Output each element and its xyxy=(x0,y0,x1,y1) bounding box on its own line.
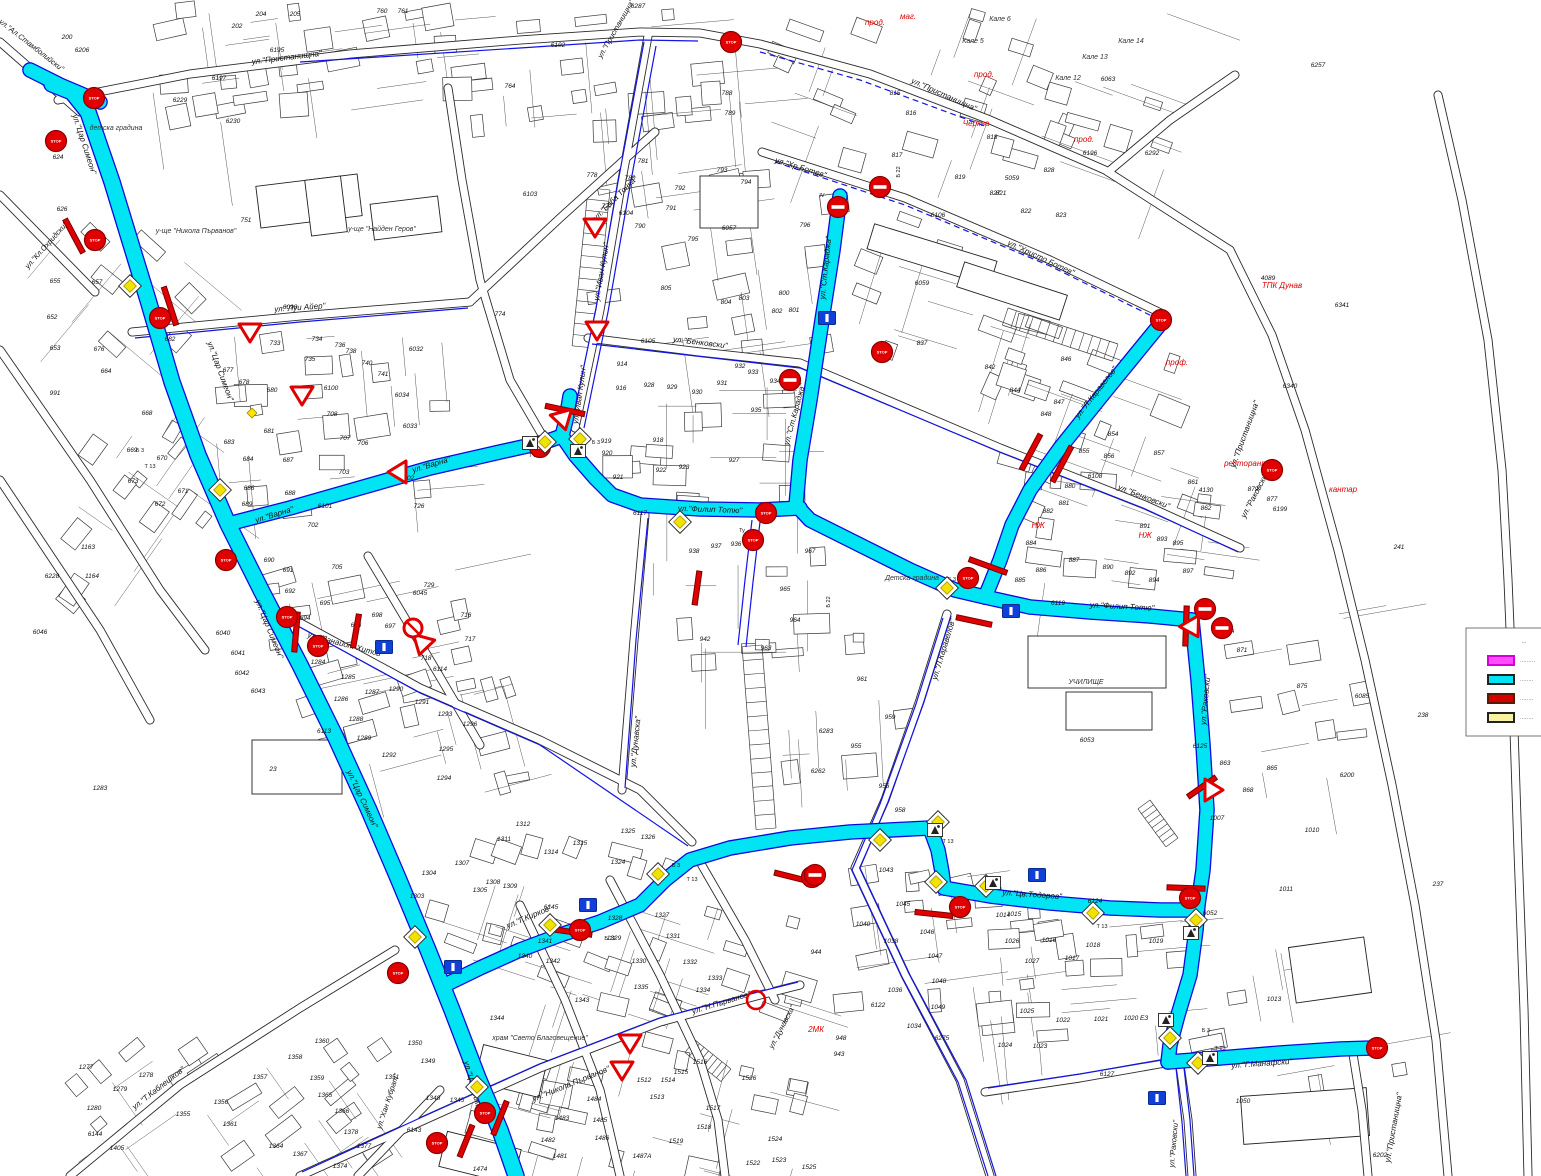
building-footprint-large xyxy=(370,196,442,240)
parcel-number: 802 xyxy=(772,308,783,315)
building-footprint xyxy=(341,1062,359,1081)
parcel-number: 887 xyxy=(1069,557,1080,564)
building-footprint xyxy=(1227,990,1247,1005)
parcel-number: 1050 xyxy=(1236,1098,1251,1105)
parcel-number: 5059 xyxy=(1005,175,1020,182)
parcel-number: 6228 xyxy=(45,573,60,580)
building-footprint xyxy=(751,1095,778,1115)
building-footprint xyxy=(684,412,702,431)
one-way-info-sign-icon xyxy=(1029,869,1046,882)
building-footprint xyxy=(277,431,302,455)
poi-label: прод. xyxy=(974,70,994,79)
legend-label: ········ xyxy=(1520,678,1534,684)
parcel-number: 1349 xyxy=(421,1058,436,1065)
building-footprint xyxy=(480,677,498,702)
parcel-number: 1036 xyxy=(888,987,903,994)
parcel-number: 884 xyxy=(1026,540,1037,547)
parcel-number: 1514 xyxy=(661,1077,676,1084)
parcel-number: 1295 xyxy=(439,746,454,753)
parcel-line xyxy=(504,96,507,127)
parcel-number: 681 xyxy=(264,428,275,435)
parcel-number: 868 xyxy=(1243,787,1254,794)
parcel-line xyxy=(1071,998,1137,1004)
building-footprint xyxy=(494,771,511,795)
place-label: детска градина xyxy=(90,124,143,132)
parcel-number: 1043 xyxy=(879,867,894,874)
parcel-number: 1025 xyxy=(1020,1008,1035,1015)
parcel-number: 1015 xyxy=(1007,911,1022,918)
parcel-number: 1278 xyxy=(139,1072,154,1079)
building-footprint xyxy=(976,1000,1013,1026)
parcel-number: 1487А xyxy=(633,1153,652,1160)
parcel-line xyxy=(1276,950,1283,990)
map-canvas[interactable]: 2002022042056206619561976229623062462675… xyxy=(0,0,1541,1176)
parcel-number: 1355 xyxy=(176,1111,191,1118)
stop-sign-icon: STOP xyxy=(872,342,893,363)
parcel-number: 1286 xyxy=(334,696,349,703)
building-footprint xyxy=(470,114,484,137)
parcel-line xyxy=(1339,606,1386,614)
parcel-number: 1335 xyxy=(634,984,649,991)
parcel-number: 238 xyxy=(1417,712,1429,719)
parcel-number: 929 xyxy=(667,384,678,391)
building-footprint xyxy=(726,238,753,256)
parcel-number: 6114 xyxy=(433,666,447,673)
parcel-number: 6101 xyxy=(318,503,333,510)
parcel-line xyxy=(127,1146,151,1176)
stop-sign-icon: STOP xyxy=(1151,310,1172,331)
no-stopping-sign-icon xyxy=(404,619,422,637)
poi-label: ТПК Дунав xyxy=(1262,281,1302,290)
sign-post-bar-icon xyxy=(692,571,702,605)
parcel-number: 1038 xyxy=(884,938,899,945)
parcel-number: 689 xyxy=(242,501,253,508)
parcel-number: 6085 xyxy=(1355,693,1370,700)
parcel-number: 6292 xyxy=(1145,150,1160,157)
parcel-number: 1027 xyxy=(1025,958,1040,965)
parcel-number: 861 xyxy=(1188,479,1199,486)
parcel-number: 948 xyxy=(836,1035,847,1042)
building-footprint xyxy=(594,82,617,96)
parcel-number: 967 xyxy=(805,548,816,555)
parcel-line xyxy=(967,871,1009,877)
svg-text:STOP: STOP xyxy=(1372,1046,1383,1051)
parcel-line xyxy=(221,122,233,205)
crossing-sign-icon xyxy=(1203,1052,1218,1065)
building-footprint xyxy=(946,918,972,929)
parcel-line xyxy=(1104,559,1139,564)
building-footprint xyxy=(701,81,722,105)
parcel-line xyxy=(902,266,922,333)
parcel-number: 1019 xyxy=(1149,938,1164,945)
building-footprint xyxy=(1126,935,1138,958)
parcel-number: 1350 xyxy=(408,1040,423,1047)
building-footprint xyxy=(1045,82,1072,105)
building-footprint xyxy=(196,511,212,528)
building-footprint xyxy=(1008,38,1033,57)
parcel-number: 1374 xyxy=(333,1163,348,1170)
parcel-number: 856 xyxy=(1104,453,1115,460)
building-footprint xyxy=(677,617,693,640)
place-label: Детска градина xyxy=(884,574,939,582)
stop-sign-icon: STOP xyxy=(721,32,742,53)
parcel-number: 1287 xyxy=(365,689,380,696)
parcel-number: 1017 xyxy=(1065,955,1080,962)
parcel-number: 1045 xyxy=(896,901,911,908)
parcel-number: 694 xyxy=(300,615,311,622)
parcel-number: 1284 xyxy=(311,659,326,666)
parcel-number: 1311 xyxy=(497,836,511,843)
building-footprint xyxy=(1315,720,1336,741)
building-footprint xyxy=(1037,1029,1069,1043)
parcel-number: 1290 xyxy=(389,686,404,693)
blue-axis-line xyxy=(988,1060,1162,1088)
parcel-number: 837 xyxy=(917,340,928,347)
parcel-number: 1359 xyxy=(310,1075,325,1082)
parcel-number: 6052 xyxy=(1203,910,1218,917)
building-footprint xyxy=(790,1093,808,1115)
parcel-number: 6117 xyxy=(633,510,647,517)
building-footprint xyxy=(178,1037,208,1066)
stop-sign-icon: STOP xyxy=(150,308,171,329)
building-footprint xyxy=(354,413,391,440)
building-footprint xyxy=(227,1083,262,1111)
parcel-line xyxy=(207,1115,228,1145)
place-label: храм "Свето Благовещение" xyxy=(491,1035,588,1042)
parcel-number: 682 xyxy=(165,336,176,343)
parcel-number: 800 xyxy=(779,290,790,297)
parcel-line xyxy=(789,999,841,1016)
parcel-number: 891 xyxy=(1140,523,1151,530)
parcel-number: 691 xyxy=(283,567,294,574)
parcel-number: 1342 xyxy=(546,958,561,965)
sign-code-label: Б 22 xyxy=(826,596,832,607)
parcel-number: 919 xyxy=(601,438,612,445)
parcel-number: 655 xyxy=(50,278,61,285)
building-footprint xyxy=(642,1032,673,1054)
building-footprint xyxy=(571,89,586,103)
building-footprint xyxy=(631,183,662,207)
poi-label: прод. xyxy=(865,18,885,27)
building-footprint xyxy=(833,992,864,1013)
parcel-number: 1040 xyxy=(856,921,871,928)
sign-post-bar-icon xyxy=(63,218,85,254)
parcel-number: 1364 xyxy=(269,1143,284,1150)
parcel-number: 1016 xyxy=(1042,937,1057,944)
legend-title: ··· xyxy=(1522,640,1527,646)
place-label: Кале 6 xyxy=(989,16,1011,23)
crossing-sign-icon xyxy=(571,445,586,458)
parcel-number: 1512 xyxy=(637,1077,652,1084)
parcel-line xyxy=(783,754,810,755)
parcel-number: 854 xyxy=(1108,431,1119,438)
parcel-line xyxy=(745,98,808,103)
parcel-number: 828 xyxy=(1044,167,1055,174)
building-footprint xyxy=(575,14,607,26)
svg-text:STOP: STOP xyxy=(89,96,100,101)
parcel-line xyxy=(225,39,269,45)
stop-sign-icon: STOP xyxy=(216,550,237,571)
legend-swatch-route-cyan xyxy=(1488,675,1514,684)
parcel-number: 1366 xyxy=(335,1108,350,1115)
parcel-number: 1523 xyxy=(772,1157,787,1164)
parcel-line xyxy=(777,1169,792,1176)
legend-label: ········· xyxy=(1520,659,1535,665)
parcel-number: 918 xyxy=(653,437,664,444)
stop-sign-icon: STOP xyxy=(1180,888,1201,909)
building-footprint xyxy=(319,455,344,470)
parcel-line xyxy=(202,28,208,70)
building-footprint xyxy=(1065,960,1084,976)
parcel-number: 796 xyxy=(800,222,811,229)
building-footprint xyxy=(853,633,864,642)
parcel-number: 738 xyxy=(346,348,357,355)
no-entry-sign-icon xyxy=(805,865,826,886)
parcel-number: 827 xyxy=(990,190,1001,197)
building-footprint-large xyxy=(1240,1088,1369,1145)
crossing-sign-icon xyxy=(523,437,538,450)
parcel-number: 690 xyxy=(264,557,275,564)
building-footprint xyxy=(691,654,716,672)
poi-label: НЖ xyxy=(1138,531,1152,540)
parcel-number: 6197 xyxy=(212,75,227,82)
parcel-line xyxy=(823,70,833,96)
parcel-number: 938 xyxy=(689,548,700,555)
parcel-number: 6113 xyxy=(317,728,331,735)
parcel-number: 1021 xyxy=(1094,1016,1109,1023)
parcel-line xyxy=(455,554,531,570)
parcel-number: 895 xyxy=(1173,540,1184,547)
parcel-number: 931 xyxy=(717,380,728,387)
building-footprint xyxy=(430,400,450,411)
parcel-line xyxy=(377,82,426,89)
parcel-number: 1011 xyxy=(1279,886,1293,893)
parcel-number: 1486 xyxy=(595,1135,610,1142)
stop-sign-icon: STOP xyxy=(85,230,106,251)
building-footprint xyxy=(90,1116,107,1132)
building-footprint xyxy=(175,283,206,314)
building-footprint xyxy=(1230,696,1263,712)
parcel-number: 1034 xyxy=(907,1023,922,1030)
parcel-number: 1330 xyxy=(632,958,647,965)
building-footprint xyxy=(687,316,707,329)
building-footprint xyxy=(500,676,516,698)
poi-label: маг. xyxy=(900,12,916,21)
building-footprint xyxy=(897,211,922,227)
parcel-line xyxy=(567,1157,583,1176)
parcel-number: 1315 xyxy=(573,840,588,847)
parcel-number: 1294 xyxy=(437,775,452,782)
parcel-line xyxy=(1062,1008,1110,1012)
crossing-sign-icon xyxy=(1159,1014,1174,1027)
parcel-line xyxy=(1253,976,1261,1022)
building-footprint xyxy=(444,933,477,954)
parcel-number: 956 xyxy=(879,783,890,790)
parcel-number: 877 xyxy=(1267,496,1278,503)
poi-label: прод. xyxy=(1074,135,1094,144)
parcel-number: 671 xyxy=(178,488,189,495)
parcel-number: 794 xyxy=(741,179,752,186)
parcel-number: 774 xyxy=(495,311,506,318)
parcel-line xyxy=(414,729,444,737)
parcel-line xyxy=(968,81,1034,105)
parcel-number: 848 xyxy=(1041,411,1052,418)
building-footprint xyxy=(646,444,673,458)
parcel-number: 624 xyxy=(53,154,64,161)
svg-text:STOP: STOP xyxy=(1185,896,1196,901)
crossing-sign-icon xyxy=(928,824,943,837)
parcel-number: 1356 xyxy=(214,1099,229,1106)
parcel-number: 816 xyxy=(906,110,917,117)
parcel-number: 1010 xyxy=(1305,827,1320,834)
parcel-number: 1279 xyxy=(113,1086,128,1093)
place-label: Кале 12 xyxy=(1055,75,1081,82)
parcel-number: 819 xyxy=(955,174,966,181)
building-footprint xyxy=(153,18,186,41)
svg-text:STOP: STOP xyxy=(575,928,586,933)
parcel-number: 959 xyxy=(885,714,896,721)
parcel-number: 922 xyxy=(656,467,667,474)
parcel-number: 885 xyxy=(1015,577,1026,584)
building-footprint xyxy=(456,678,476,691)
parcel-number: 1341 xyxy=(538,938,553,945)
building-footprint xyxy=(1090,958,1122,976)
parcel-line xyxy=(879,700,883,784)
parcel-number: 6229 xyxy=(173,97,188,104)
building-footprint-large xyxy=(252,740,342,794)
place-label: Кале 13 xyxy=(1082,54,1108,61)
parcel-line xyxy=(1327,778,1337,834)
parcel-number: 955 xyxy=(851,743,862,750)
parcel-number: 6230 xyxy=(226,118,241,125)
building-footprint xyxy=(119,1037,145,1061)
parcel-number: 923 xyxy=(679,464,690,471)
building-footprint xyxy=(516,19,540,33)
building-footprint xyxy=(786,19,824,42)
parcel-number: 626 xyxy=(57,206,68,213)
parcel-number: 204 xyxy=(255,11,267,18)
parcel-number: 846 xyxy=(1061,356,1072,363)
parcel-number: 1332 xyxy=(683,959,698,966)
svg-text:STOP: STOP xyxy=(313,644,324,649)
building-footprint xyxy=(165,103,190,130)
parcel-number: 927 xyxy=(729,457,740,464)
parcel-line xyxy=(525,1156,538,1176)
parcel-number: 1293 xyxy=(438,711,453,718)
svg-text:STOP: STOP xyxy=(480,1111,491,1116)
parcel-number: 935 xyxy=(751,407,762,414)
parcel-number: 1405 xyxy=(110,1145,125,1152)
parcel-number: 1324 xyxy=(611,859,626,866)
sign-code-label: Б 3 xyxy=(592,440,600,446)
parcel-line xyxy=(1262,773,1266,798)
building-footprint xyxy=(605,956,632,976)
parcel-line xyxy=(931,50,940,76)
one-way-info-sign-icon xyxy=(1149,1092,1166,1105)
parcel-number: 1344 xyxy=(490,1015,505,1022)
street-name-label: ул."Пристанищна" xyxy=(1383,1091,1404,1164)
parcel-number: 847 xyxy=(1054,399,1065,406)
parcel-number: 862 xyxy=(1201,505,1212,512)
svg-text:STOP: STOP xyxy=(955,905,966,910)
poi-label: кантар xyxy=(1329,485,1358,494)
crossing-sign-icon xyxy=(986,877,1001,890)
parcel-number: 790 xyxy=(635,223,646,230)
sign-code-label: Б 3 xyxy=(136,448,144,454)
parcel-number: 706 xyxy=(358,440,369,447)
parcel-number: 793 xyxy=(717,167,728,174)
parcel-number: 1360 xyxy=(315,1038,330,1045)
parcel-number: 1361 xyxy=(223,1121,238,1128)
parcel-number: 1325 xyxy=(621,828,636,835)
parcel-line xyxy=(415,373,420,425)
street xyxy=(448,88,545,440)
parcel-number: 6057 xyxy=(722,225,737,232)
parcel-number: 678 xyxy=(239,379,250,386)
building-footprint xyxy=(1278,690,1300,715)
parcel-number: 943 xyxy=(834,1051,845,1058)
parcel-number: 241 xyxy=(1393,544,1405,551)
parcel-number: 881 xyxy=(1059,500,1070,507)
parcel-number: 708 xyxy=(327,411,338,418)
yield-sign-icon xyxy=(584,219,606,237)
parcel-number: 842 xyxy=(985,364,996,371)
parcel-number: 202 xyxy=(231,23,243,30)
parcel-line xyxy=(1277,1066,1334,1076)
parcel-number: 702 xyxy=(308,522,319,529)
parcel-number: 1280 xyxy=(87,1105,102,1112)
stop-sign-icon: STOP xyxy=(475,1103,496,1124)
parcel-number: 920 xyxy=(602,450,613,457)
parcel-number: 844 xyxy=(1010,387,1021,394)
parcel-number: 6108 xyxy=(1088,473,1103,480)
legend: ···································· xyxy=(1466,628,1541,736)
parcel-number: 740 xyxy=(362,360,373,367)
parcel-number: 804 xyxy=(721,299,732,306)
building-footprint xyxy=(1287,640,1321,665)
parcel-number: 893 xyxy=(1157,536,1168,543)
parcel-number: 865 xyxy=(1267,765,1278,772)
sign-code-label: Т 13 xyxy=(686,877,697,883)
building-footprint xyxy=(597,992,629,1016)
building-footprint xyxy=(221,1140,254,1171)
building-footprint xyxy=(560,58,584,75)
poi-label: Черква xyxy=(963,119,990,128)
parcel-number: 892 xyxy=(1125,570,1136,577)
place-label: УЧИЛИЩЕ xyxy=(1067,679,1103,686)
building-footprint xyxy=(233,91,268,105)
sign-code-label: Б 3 xyxy=(1202,1028,1210,1034)
parcel-number: 652 xyxy=(47,314,58,321)
parcel-line xyxy=(442,343,447,402)
parcel-number: 6257 xyxy=(1311,62,1326,69)
building-footprint xyxy=(527,106,543,122)
parcel-line xyxy=(267,1068,289,1099)
parcel-number: 672 xyxy=(155,501,166,508)
parcel-number: 944 xyxy=(811,949,822,956)
parcel-number: 795 xyxy=(688,236,699,243)
parcel-number: 1277 xyxy=(79,1064,94,1071)
stop-sign-icon: STOP xyxy=(1367,1038,1388,1059)
parcel-number: 1348 xyxy=(426,1095,441,1102)
building-footprint xyxy=(521,834,543,859)
parcel-line xyxy=(415,494,418,532)
stop-sign-icon: STOP xyxy=(84,88,105,109)
parcel-number: 778 xyxy=(587,172,598,179)
place-label: у-ще "Никола Първанов" xyxy=(155,228,237,235)
parcel-number: 1327 xyxy=(655,912,670,919)
svg-text:STOP: STOP xyxy=(90,238,101,243)
